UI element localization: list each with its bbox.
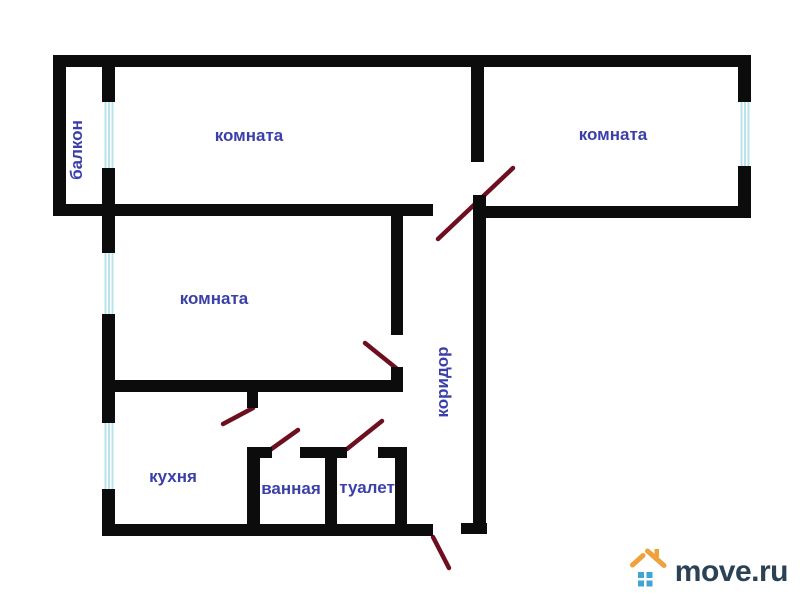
outer-left-wall — [53, 55, 66, 216]
top-rooms-divider-wall — [471, 55, 484, 162]
outer-bottom-wall — [102, 524, 433, 536]
logo-text: move.ru — [675, 557, 788, 589]
outer-right-wall-upper — [738, 55, 751, 102]
room-label-toilet: туалет — [339, 478, 395, 498]
room-label-balcony: балкон — [67, 120, 87, 180]
bathroom-left-wall — [247, 447, 260, 536]
room-label-kitchen: кухня — [149, 467, 197, 487]
mid-room-left-wall-upper — [102, 216, 115, 253]
toilet-door-swing — [347, 421, 382, 449]
corridor-right-wall — [473, 195, 486, 534]
mid-room-right-wall-upper — [391, 216, 403, 335]
floor-plan: move.ru балконкомнатакомнатакомнатакорид… — [0, 0, 800, 597]
bathroom-top-wall-mid — [300, 447, 347, 458]
mid-room-left-wall-mid — [102, 314, 115, 423]
balcony-inner-wall-upper — [102, 55, 115, 102]
room-label-room-3: комната — [180, 289, 249, 309]
room-label-room-1: комната — [215, 126, 284, 146]
kitchen-window — [103, 423, 114, 489]
room-label-corridor: коридор — [433, 346, 453, 417]
house-icon — [630, 546, 667, 589]
mid-room-door-swing — [365, 343, 396, 368]
bathroom-door-swing — [270, 430, 298, 450]
toilet-right-wall — [395, 447, 407, 536]
room-label-bathroom: ванная — [261, 479, 321, 499]
mid-room-bottom-wall — [108, 380, 403, 392]
right-room-window — [739, 102, 750, 166]
mid-room-window — [103, 253, 114, 314]
right-room-bottom-wall — [473, 206, 751, 218]
kitchen-door-stub-wall — [247, 392, 258, 408]
move-ru-logo: move.ru — [630, 546, 788, 589]
entrance-door-swing — [433, 537, 449, 568]
hall-top-wall — [53, 204, 433, 216]
balcony-window — [103, 102, 114, 168]
kitchen-door-swing — [223, 408, 253, 424]
bathroom-toilet-divider — [325, 447, 337, 536]
corridor-right-wall-foot — [461, 523, 487, 534]
room-label-room-2: комната — [579, 125, 648, 145]
outer-top-wall — [53, 55, 751, 67]
